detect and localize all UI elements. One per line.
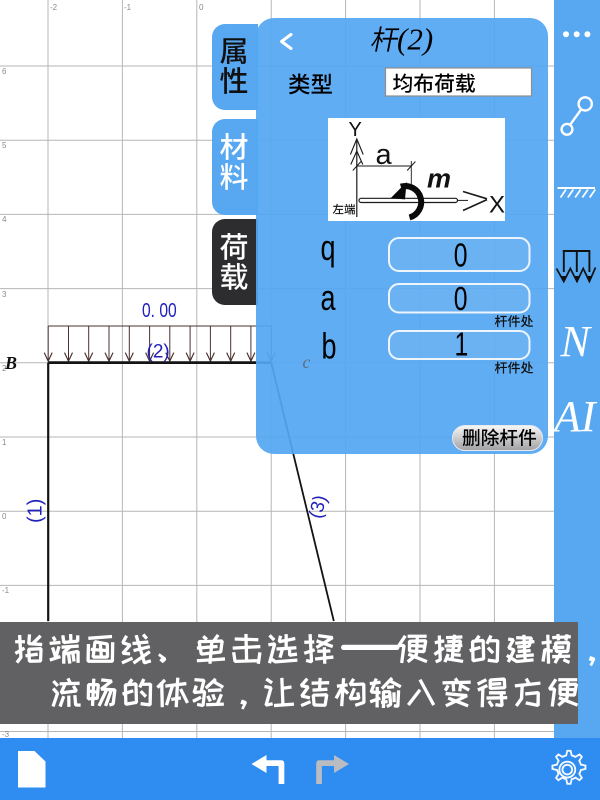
svg-text:N: N (560, 317, 593, 366)
svg-text:AI: AI (551, 392, 598, 441)
